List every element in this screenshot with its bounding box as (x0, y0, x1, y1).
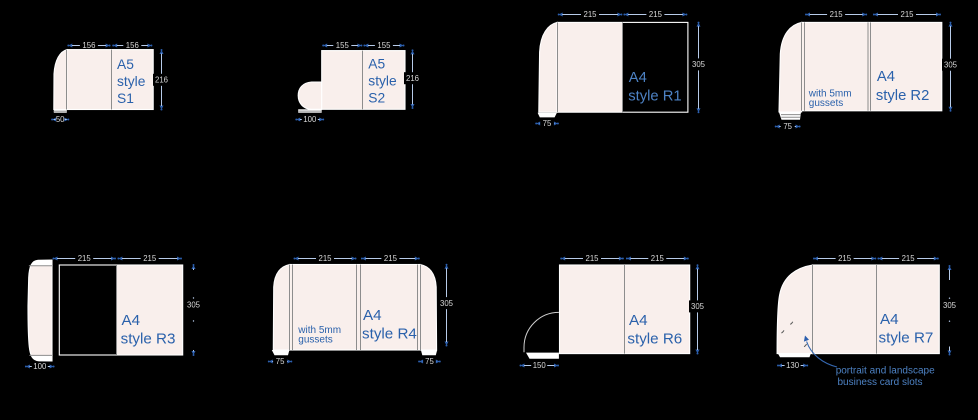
svg-text:215: 215 (838, 254, 852, 263)
svg-text:156: 156 (82, 41, 95, 50)
svg-text:style R7: style R7 (879, 330, 934, 347)
svg-text:business card slots: business card slots (838, 377, 923, 388)
svg-text:215: 215 (585, 254, 599, 263)
svg-text:75: 75 (783, 122, 792, 131)
svg-text:155: 155 (336, 41, 350, 50)
svg-text:gussets: gussets (298, 335, 332, 346)
svg-text:215: 215 (902, 254, 916, 263)
svg-text:A5: A5 (117, 57, 134, 72)
svg-text:style R1: style R1 (628, 89, 681, 105)
svg-text:style: style (368, 74, 397, 89)
svg-text:75: 75 (276, 357, 285, 366)
svg-text:216: 216 (406, 74, 419, 83)
svg-text:150: 150 (533, 361, 547, 370)
svg-text:style: style (117, 74, 146, 89)
svg-text:215: 215 (318, 254, 332, 263)
svg-text:215: 215 (900, 10, 914, 19)
svg-text:A4: A4 (629, 312, 648, 329)
svg-text:215: 215 (583, 10, 597, 19)
svg-text:305: 305 (187, 301, 201, 310)
svg-text:215: 215 (649, 10, 663, 19)
svg-text:215: 215 (651, 254, 665, 263)
svg-text:style R4: style R4 (362, 326, 417, 343)
svg-text:A4: A4 (880, 311, 899, 328)
svg-text:style R6: style R6 (627, 331, 682, 348)
svg-text:215: 215 (384, 254, 398, 263)
svg-text:155: 155 (377, 41, 391, 50)
svg-text:A4: A4 (122, 312, 141, 329)
svg-text:130: 130 (786, 361, 800, 370)
svg-text:215: 215 (143, 254, 157, 263)
svg-text:215: 215 (830, 10, 844, 19)
svg-text:100: 100 (303, 115, 317, 124)
svg-text:305: 305 (692, 60, 706, 69)
svg-text:A4: A4 (363, 307, 382, 324)
svg-text:A4: A4 (877, 69, 895, 85)
svg-text:A5: A5 (368, 57, 385, 72)
svg-text:215: 215 (78, 254, 92, 263)
svg-text:portrait and landscape: portrait and landscape (836, 366, 935, 377)
svg-text:A4: A4 (629, 70, 647, 86)
svg-text:gussets: gussets (809, 98, 843, 109)
svg-text:305: 305 (944, 60, 958, 69)
svg-text:S2: S2 (368, 91, 385, 106)
svg-text:style R3: style R3 (121, 331, 176, 348)
svg-text:75: 75 (425, 357, 434, 366)
svg-text:style R2: style R2 (876, 88, 929, 104)
svg-text:50: 50 (56, 115, 65, 124)
svg-text:216: 216 (155, 76, 168, 85)
svg-text:75: 75 (543, 119, 552, 128)
svg-text:305: 305 (691, 302, 705, 311)
svg-text:305: 305 (943, 301, 957, 310)
svg-text:305: 305 (440, 299, 454, 308)
svg-text:S1: S1 (117, 91, 134, 106)
svg-text:100: 100 (33, 362, 47, 371)
svg-text:156: 156 (126, 41, 139, 50)
